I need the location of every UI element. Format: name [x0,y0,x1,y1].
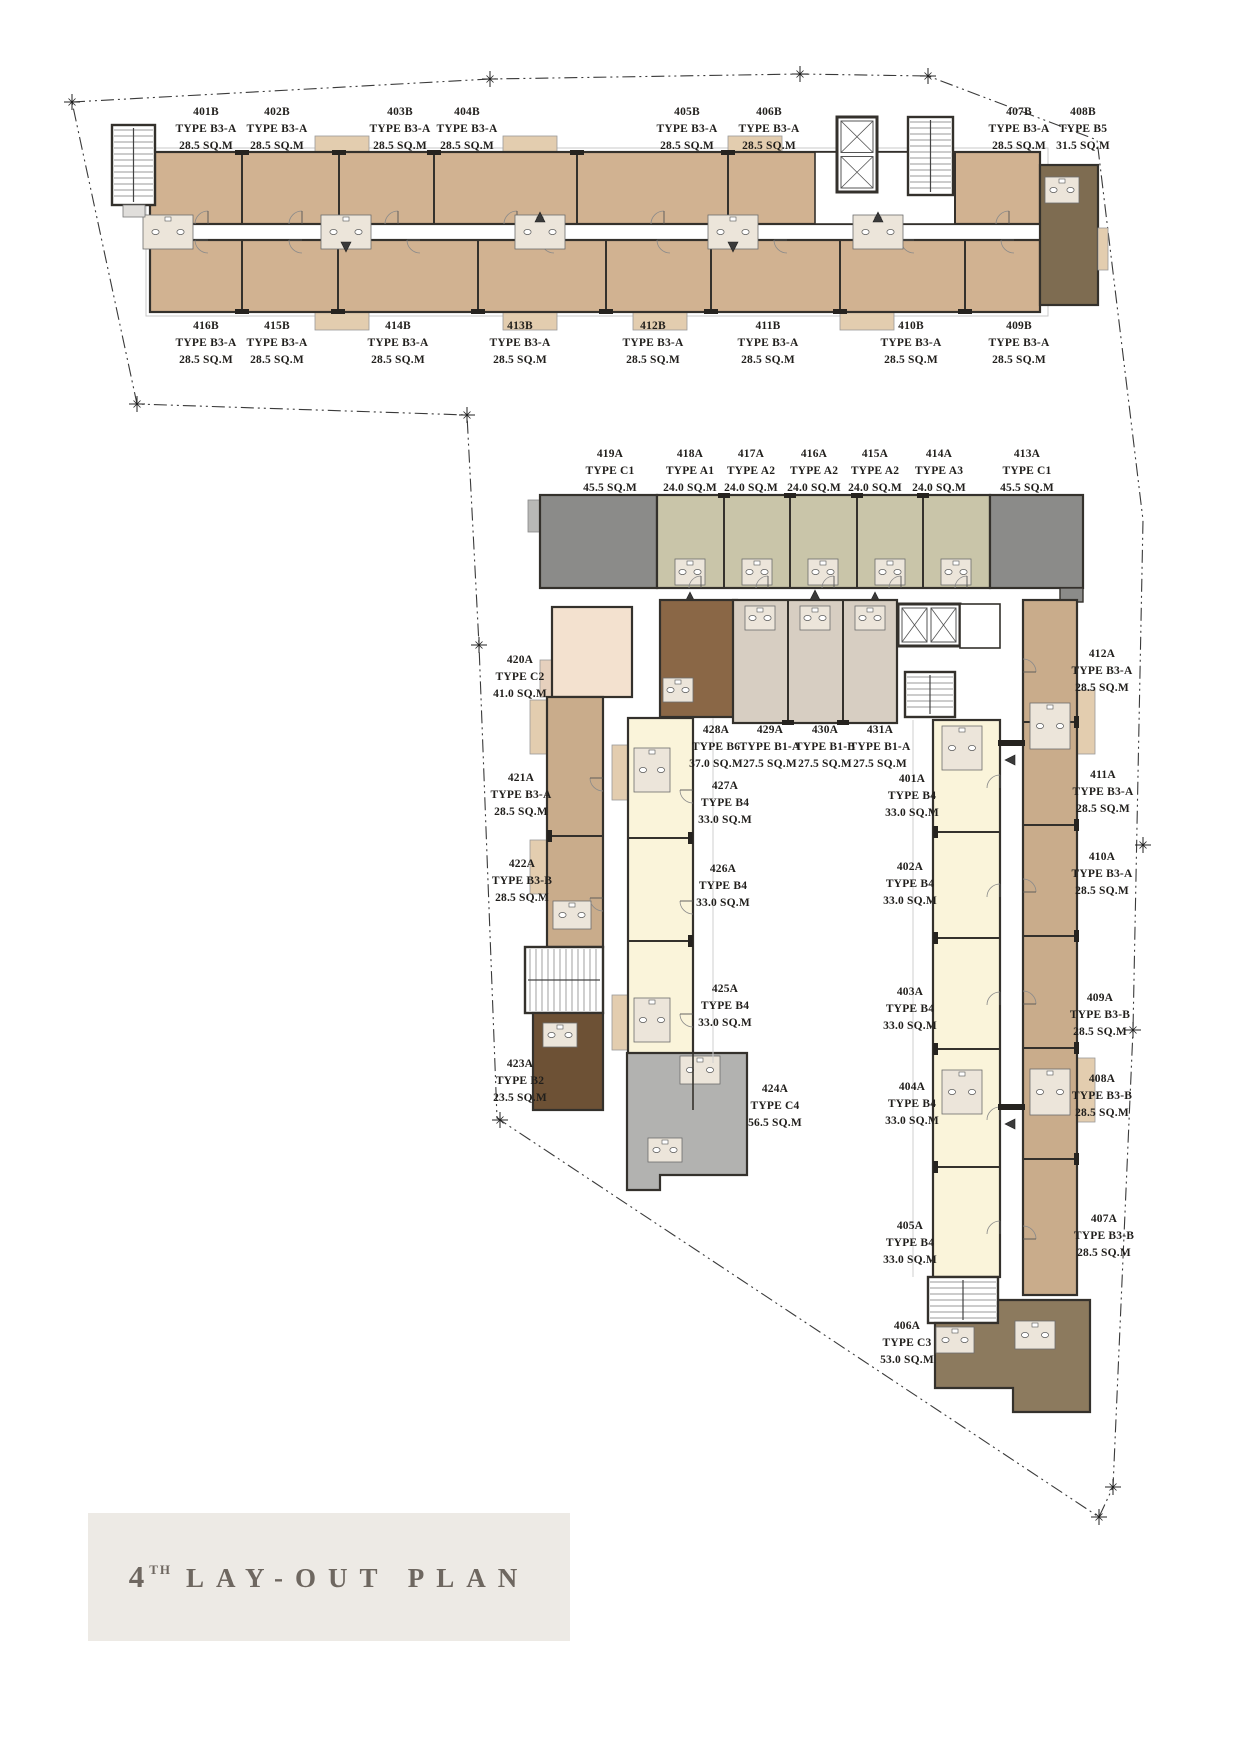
floor-number: 4 [129,1559,147,1595]
unit-label-431a: 431ATYPE B1-A27.5 SQ.M [850,722,911,773]
unit-label-402b: 402BTYPE B3-A28.5 SQ.M [247,104,308,155]
page-title: 4 TH LAY-OUT PLAN [129,1559,530,1595]
unit-label-403b: 403BTYPE B3-A28.5 SQ.M [370,104,431,155]
unit-label-429a: 429ATYPE B1-A27.5 SQ.M [740,722,801,773]
unit-label-421a: 421ATYPE B3-A28.5 SQ.M [491,770,552,821]
unit-label-402a: 402ATYPE B433.0 SQ.M [883,859,937,910]
unit-label-405b: 405BTYPE B3-A28.5 SQ.M [657,104,718,155]
floor-plan-page: 401BTYPE B3-A28.5 SQ.M 402BTYPE B3-A28.5… [0,0,1240,1753]
unit-label-404b: 404BTYPE B3-A28.5 SQ.M [437,104,498,155]
unit-label-419a: 419ATYPE C145.5 SQ.M [583,446,637,497]
unit-label-412a: 412ATYPE B3-A28.5 SQ.M [1072,646,1133,697]
unit-label-428a: 428ATYPE B637.0 SQ.M [689,722,743,773]
unit-label-414b: 414BTYPE B3-A28.5 SQ.M [368,318,429,369]
unit-label-406a: 406ATYPE C353.0 SQ.M [880,1318,934,1369]
unit-label-424a: 424ATYPE C456.5 SQ.M [748,1081,802,1132]
unit-label-418a: 418ATYPE A124.0 SQ.M [663,446,717,497]
unit-label-409a: 409ATYPE B3-B28.5 SQ.M [1070,990,1130,1041]
unit-label-406b: 406BTYPE B3-A28.5 SQ.M [739,104,800,155]
unit-label-413a: 413ATYPE C145.5 SQ.M [1000,446,1054,497]
unit-label-408b: 408BTYPE B531.5 SQ.M [1056,104,1110,155]
unit-label-401a: 401ATYPE B433.0 SQ.M [885,771,939,822]
unit-label-408a: 408ATYPE B3-B28.5 SQ.M [1072,1071,1132,1122]
unit-label-413b: 413BTYPE B3-A28.5 SQ.M [490,318,551,369]
unit-label-404a: 404ATYPE B433.0 SQ.M [885,1079,939,1130]
unit-label-401b: 401BTYPE B3-A28.5 SQ.M [176,104,237,155]
unit-label-410b: 410BTYPE B3-A28.5 SQ.M [881,318,942,369]
title-text: LAY-OUT PLAN [186,1563,529,1594]
unit-label-417a: 417ATYPE A224.0 SQ.M [724,446,778,497]
unit-label-430a: 430ATYPE B1-B27.5 SQ.M [795,722,855,773]
unit-label-405a: 405ATYPE B433.0 SQ.M [883,1218,937,1269]
unit-label-423a: 423ATYPE B223.5 SQ.M [493,1056,547,1107]
unit-label-416b: 416BTYPE B3-A28.5 SQ.M [176,318,237,369]
unit-label-425a: 425ATYPE B433.0 SQ.M [698,981,752,1032]
unit-label-426a: 426ATYPE B433.0 SQ.M [696,861,750,912]
unit-label-415a: 415ATYPE A224.0 SQ.M [848,446,902,497]
unit-label-416a: 416ATYPE A224.0 SQ.M [787,446,841,497]
unit-label-411b: 411BTYPE B3-A28.5 SQ.M [738,318,799,369]
unit-label-407a: 407ATYPE B3-B28.5 SQ.M [1074,1211,1134,1262]
title-block: 4 TH LAY-OUT PLAN [88,1513,570,1641]
unit-label-420a: 420ATYPE C241.0 SQ.M [493,652,547,703]
unit-label-407b: 407BTYPE B3-A28.5 SQ.M [989,104,1050,155]
unit-label-414a: 414ATYPE A324.0 SQ.M [912,446,966,497]
unit-label-410a: 410ATYPE B3-A28.5 SQ.M [1072,849,1133,900]
unit-label-409b: 409BTYPE B3-A28.5 SQ.M [989,318,1050,369]
unit-label-422a: 422ATYPE B3-B28.5 SQ.M [492,856,552,907]
unit-label-412b: 412BTYPE B3-A28.5 SQ.M [623,318,684,369]
floor-plan-canvas [0,0,1240,1753]
unit-label-403a: 403ATYPE B433.0 SQ.M [883,984,937,1035]
unit-label-415b: 415BTYPE B3-A28.5 SQ.M [247,318,308,369]
unit-label-427a: 427ATYPE B433.0 SQ.M [698,778,752,829]
unit-label-411a: 411ATYPE B3-A28.5 SQ.M [1073,767,1134,818]
floor-ordinal: TH [149,1562,172,1578]
